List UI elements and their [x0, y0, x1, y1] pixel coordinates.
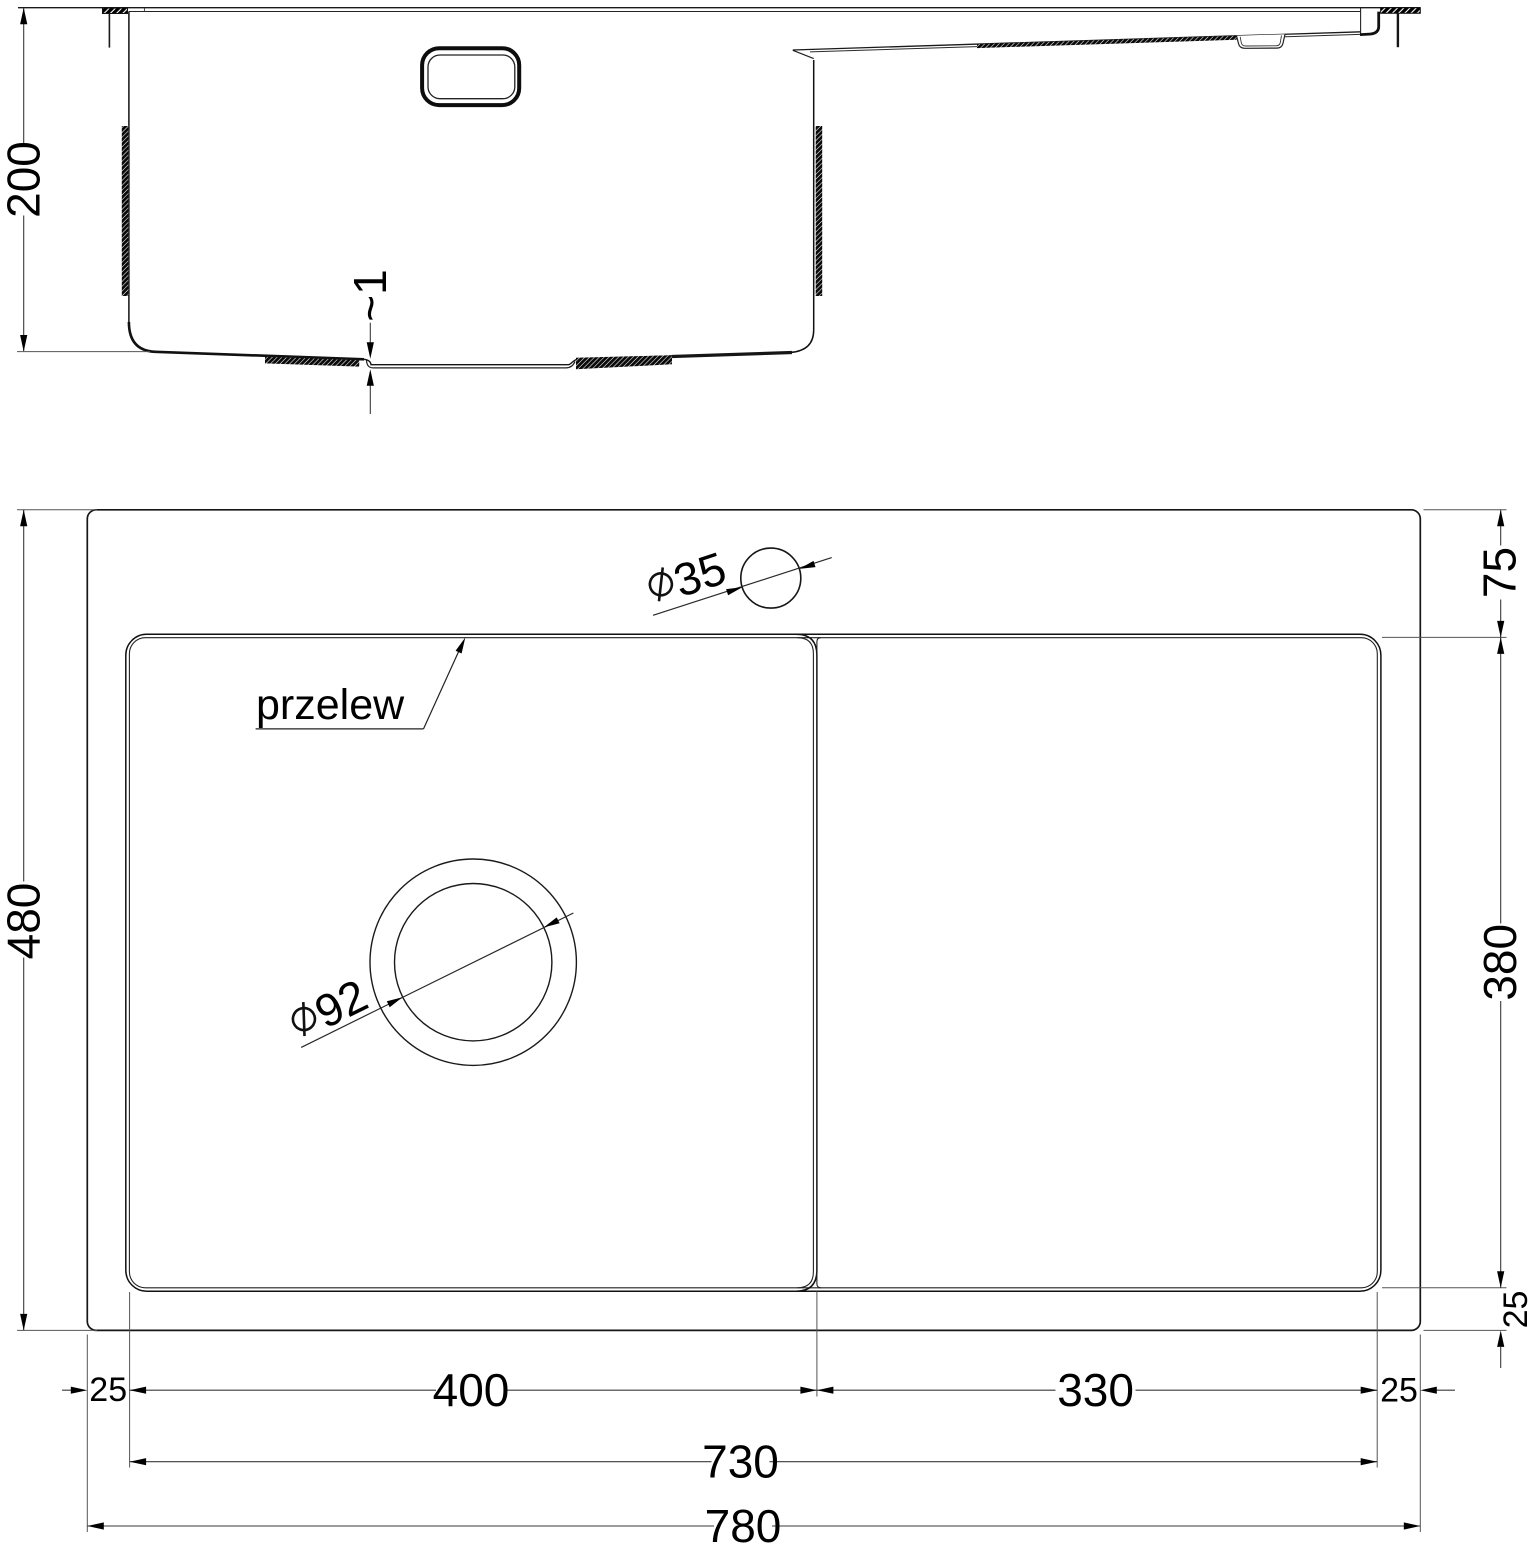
svg-text:przelew: przelew	[256, 681, 405, 729]
svg-text:380: 380	[1474, 924, 1526, 1001]
svg-text:480: 480	[0, 883, 50, 960]
svg-text:75: 75	[1474, 547, 1526, 598]
svg-text:330: 330	[1057, 1364, 1134, 1416]
svg-text:25: 25	[1497, 1291, 1528, 1329]
svg-text:730: 730	[702, 1436, 779, 1488]
svg-text:400: 400	[433, 1364, 510, 1416]
svg-text:780: 780	[705, 1500, 782, 1549]
svg-text:25: 25	[89, 1371, 127, 1409]
svg-text:200: 200	[0, 141, 50, 218]
svg-text:~1: ~1	[344, 269, 396, 321]
svg-text:25: 25	[1380, 1372, 1418, 1410]
